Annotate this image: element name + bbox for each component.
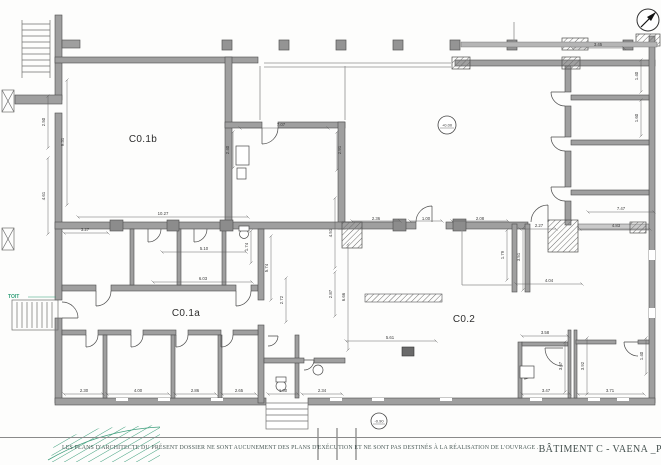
dimension-label: 1.60 <box>634 113 639 122</box>
stair-exterior-left <box>12 300 58 330</box>
elevation-label: +0.00 <box>442 123 453 128</box>
dimension-label: 2.50 <box>41 117 46 126</box>
dimension-label: 3.51 <box>516 252 521 261</box>
stair-top-left <box>22 20 50 78</box>
counter <box>365 294 442 302</box>
drawing-title: BÂTIMENT C - VAENA _PLAN RDC - ECH 1/100 <box>539 444 661 455</box>
dimension-label: 3.47 <box>542 388 551 393</box>
dimension-label: 6.03 <box>199 276 208 281</box>
dimension-label: 3.67 <box>558 361 563 370</box>
dimension-label: 1.40 <box>634 71 639 80</box>
glazing-lines <box>260 63 512 285</box>
floor-plan-canvas: 7.072.402.919.312.504.6110.273.275.106.0… <box>0 0 661 465</box>
dimension-label: 5.10 <box>200 246 209 251</box>
dimension-label: 2.87 <box>328 289 333 298</box>
dimension-label: 1.79 <box>500 250 505 259</box>
dimension-label: 1.00 <box>422 216 431 221</box>
dimension-label: 1.74 <box>244 242 249 251</box>
room-label: C0.2 <box>453 314 475 325</box>
dimension-label: 1.00 <box>279 388 288 393</box>
dimension-label: 5.61 <box>386 335 395 340</box>
drawing-page: 7.072.402.919.312.504.6110.273.275.106.0… <box>0 0 661 465</box>
dimension-label: 6.66 <box>341 292 346 301</box>
dimension-label: 4.00 <box>134 388 143 393</box>
dimension-label: 4.61 <box>41 191 46 200</box>
room-label: C0.1b <box>129 134 157 145</box>
dimension-label: 2.65 <box>235 388 244 393</box>
dimension-label: 3.27 <box>81 227 90 232</box>
dimension-label: 3.45 <box>594 42 603 47</box>
dimension-label: 2.27 <box>535 223 544 228</box>
equipment-box <box>402 347 414 356</box>
annotation-layer: TOIT <box>8 294 56 300</box>
dimension-label: 3.58 <box>541 330 550 335</box>
dimension-label: 3.92 <box>580 361 585 370</box>
dimension-label: 2.86 <box>191 388 200 393</box>
dimension-label: 2.40 <box>225 145 230 154</box>
canopy-beam <box>461 22 657 47</box>
dimension-label: 4.51 <box>328 228 333 237</box>
dimension-label: 5.74 <box>264 263 269 272</box>
title-block: LES PLANS D'ARCHITECTE DU PRÉSENT DOSSIE… <box>0 437 661 465</box>
dimension-label: 2.34 <box>318 388 327 393</box>
dimension-label: 4.83 <box>612 223 621 228</box>
dimension-label: 2.08 <box>476 216 485 221</box>
stair-exterior-bottom <box>266 403 308 429</box>
dimension-label: 9.31 <box>60 137 65 146</box>
disclaimer-note: LES PLANS D'ARCHITECTE DU PRÉSENT DOSSIE… <box>62 445 539 451</box>
dimension-label: 3.71 <box>606 388 615 393</box>
room-label: C0.1a <box>172 308 200 319</box>
dimension-label: 10.27 <box>158 211 169 216</box>
dimension-label: 7.07 <box>277 122 286 127</box>
dimension-label: 2.36 <box>372 216 381 221</box>
dimension-label: 1.40 <box>639 351 644 360</box>
dimension-label: 7.47 <box>617 206 626 211</box>
fixtures <box>236 146 534 391</box>
elevation-label: -0.90 <box>374 419 384 424</box>
north-arrow-icon <box>637 9 659 31</box>
green-annotation: TOIT <box>8 294 19 300</box>
dimension-label: 4.04 <box>545 278 554 283</box>
dimension-label: 2.30 <box>80 388 89 393</box>
dimension-label: 2.72 <box>279 295 284 304</box>
left-detail-boxes <box>2 90 14 250</box>
dimension-label: 2.91 <box>337 145 342 154</box>
elevation-marker-layer: +0.00-0.90 <box>371 116 456 429</box>
